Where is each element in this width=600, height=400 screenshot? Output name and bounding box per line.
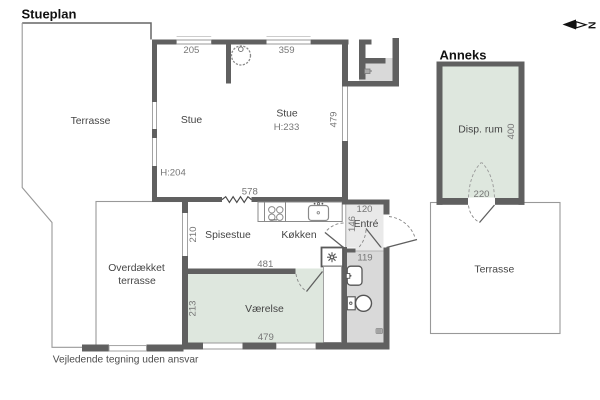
svg-text:359: 359	[279, 45, 295, 56]
svg-text:Terrasse: Terrasse	[71, 116, 111, 127]
svg-text:479: 479	[329, 111, 340, 127]
svg-text:481: 481	[257, 259, 273, 270]
svg-text:Køkken: Køkken	[281, 230, 316, 241]
svg-text:Vejledende tegning uden ansvar: Vejledende tegning uden ansvar	[53, 354, 199, 365]
svg-text:Værelse: Værelse	[245, 304, 284, 315]
svg-text:120: 120	[356, 204, 372, 215]
svg-text:479: 479	[258, 332, 274, 343]
svg-text:146: 146	[347, 216, 358, 232]
svg-text:Spisestue: Spisestue	[205, 230, 251, 241]
svg-text:400: 400	[506, 123, 517, 139]
svg-text:210: 210	[188, 226, 199, 242]
svg-text:Terrasse: Terrasse	[474, 265, 514, 276]
svg-text:Stueplan: Stueplan	[22, 6, 77, 21]
svg-text:H:204: H:204	[160, 168, 186, 179]
svg-text:213: 213	[188, 300, 199, 316]
svg-text:119: 119	[357, 253, 372, 264]
svg-text:N: N	[586, 22, 598, 30]
svg-text:Stue: Stue	[181, 115, 203, 126]
svg-text:205: 205	[183, 45, 199, 56]
svg-text:Anneks: Anneks	[440, 47, 487, 62]
svg-text:578: 578	[242, 186, 258, 197]
svg-text:terrasse: terrasse	[118, 276, 156, 287]
svg-text:Disp. rum: Disp. rum	[458, 125, 502, 136]
svg-text:H:233: H:233	[274, 122, 300, 133]
svg-text:Stue: Stue	[276, 108, 298, 119]
svg-text:Overdækket: Overdækket	[108, 263, 165, 274]
